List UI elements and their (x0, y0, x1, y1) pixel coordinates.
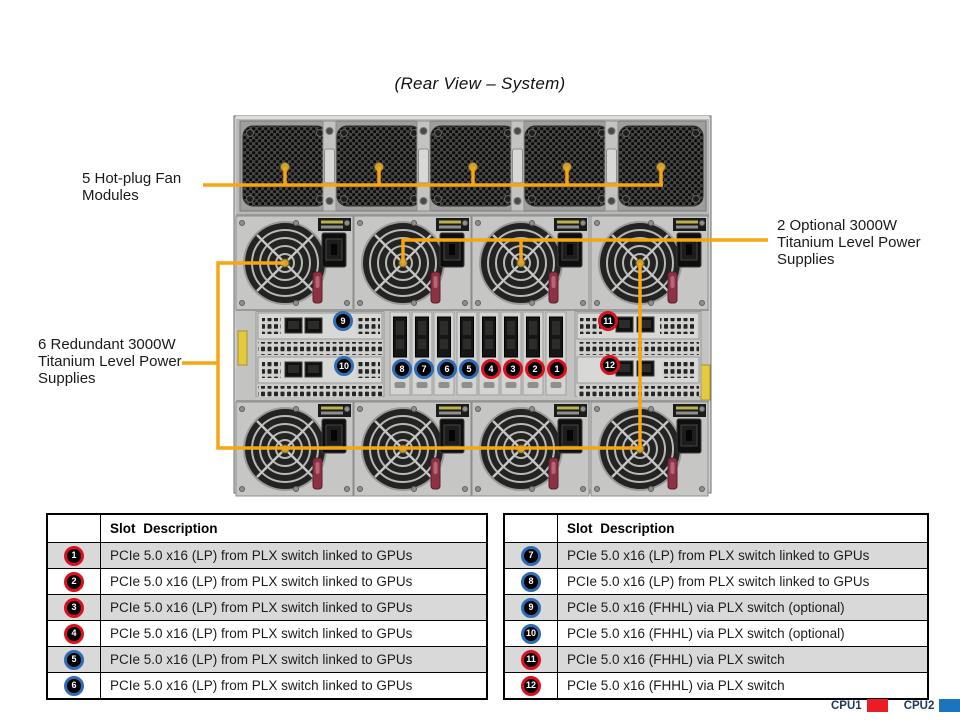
slot-number: 6 (71, 681, 76, 690)
table-row: 5PCIe 5.0 x16 (LP) from PLX switch linke… (48, 646, 486, 672)
slot-badge: 5 (64, 650, 84, 670)
table-row: 12PCIe 5.0 x16 (FHHL) via PLX switch (505, 672, 927, 698)
table-row: 7PCIe 5.0 x16 (LP) from PLX switch linke… (505, 542, 927, 568)
slot-number: 11 (526, 655, 536, 664)
slot-number: 12 (526, 681, 536, 690)
row-badge-cell: 1 (48, 543, 101, 568)
cpu1-label: CPU1 (831, 700, 862, 712)
cpu1-color-swatch (867, 699, 888, 712)
row-badge-cell: 9 (505, 595, 558, 620)
slot-badge: 2 (64, 572, 84, 592)
slot-badge: 1 (64, 546, 84, 566)
table-header-row: Slot Description (505, 515, 927, 542)
redundant-psu-callout-label: 6 Redundant 3000W Titanium Level Power S… (38, 336, 196, 387)
slot-badge: 7 (521, 546, 541, 566)
slot-description: PCIe 5.0 x16 (LP) from PLX switch linked… (101, 647, 486, 672)
fhhl-left-section (256, 312, 384, 398)
server-rear-diagram (0, 105, 960, 515)
row-badge-cell: 12 (505, 673, 558, 698)
page-title: (Rear View – System) (0, 74, 960, 94)
psu-row-top (236, 216, 709, 312)
table-row: 3PCIe 5.0 x16 (LP) from PLX switch linke… (48, 594, 486, 620)
slot-table-right: Slot Description7PCIe 5.0 x16 (LP) from … (503, 513, 929, 700)
table-row: 2PCIe 5.0 x16 (LP) from PLX switch linke… (48, 568, 486, 594)
row-badge-cell: 2 (48, 569, 101, 594)
slot-description: PCIe 5.0 x16 (FHHL) via PLX switch (558, 647, 927, 672)
slot-description: PCIe 5.0 x16 (LP) from PLX switch linked… (101, 543, 486, 568)
row-badge-cell: 4 (48, 621, 101, 646)
slot-description: PCIe 5.0 x16 (LP) from PLX switch linked… (101, 621, 486, 646)
slot-description: PCIe 5.0 x16 (LP) from PLX switch linked… (558, 543, 927, 568)
slot-description: PCIe 5.0 x16 (LP) from PLX switch linked… (558, 569, 927, 594)
slot-number: 3 (71, 603, 76, 612)
slot-description: PCIe 5.0 x16 (LP) from PLX switch linked… (101, 569, 486, 594)
row-badge-cell: 3 (48, 595, 101, 620)
table-row: 6PCIe 5.0 x16 (LP) from PLX switch linke… (48, 672, 486, 698)
table-row: 11PCIe 5.0 x16 (FHHL) via PLX switch (505, 646, 927, 672)
row-badge-cell: 7 (505, 543, 558, 568)
table-row: 1PCIe 5.0 x16 (LP) from PLX switch linke… (48, 542, 486, 568)
page: { "page": { "title": "(Rear View – Syste… (0, 0, 960, 720)
slot-number: 2 (71, 577, 76, 586)
slot-badge: 4 (64, 624, 84, 644)
table-row: 4PCIe 5.0 x16 (LP) from PLX switch linke… (48, 620, 486, 646)
slot-badge: 9 (521, 598, 541, 618)
slot-badge: 3 (64, 598, 84, 618)
slot-badge: 12 (521, 676, 541, 696)
slot-description: PCIe 5.0 x16 (FHHL) via PLX switch (558, 673, 927, 698)
slot-description: PCIe 5.0 x16 (FHHL) via PLX switch (opti… (558, 595, 927, 620)
row-badge-cell: 6 (48, 673, 101, 698)
table-row: 9PCIe 5.0 x16 (FHHL) via PLX switch (opt… (505, 594, 927, 620)
fan-callout-label: 5 Hot-plug Fan Modules (82, 170, 202, 204)
row-badge-cell: 5 (48, 647, 101, 672)
optional-psu-callout-label: 2 Optional 3000W Titanium Level Power Su… (777, 217, 935, 268)
slot-number: 1 (71, 551, 76, 560)
header-badge-cell (48, 515, 101, 542)
slot-number: 7 (528, 551, 533, 560)
row-badge-cell: 10 (505, 621, 558, 646)
slot-description: PCIe 5.0 x16 (FHHL) via PLX switch (opti… (558, 621, 927, 646)
slot-description: PCIe 5.0 x16 (LP) from PLX switch linked… (101, 673, 486, 698)
slot-number: 8 (528, 577, 533, 586)
slot-number: 10 (526, 629, 536, 638)
slot-badge: 8 (521, 572, 541, 592)
table-header-label: Slot Description (558, 515, 927, 542)
slot-table-left: Slot Description1PCIe 5.0 x16 (LP) from … (46, 513, 488, 700)
row-badge-cell: 8 (505, 569, 558, 594)
cpu2-label: CPU2 (904, 700, 935, 712)
slot-number: 5 (71, 655, 76, 664)
table-header-row: Slot Description (48, 515, 486, 542)
row-badge-cell: 11 (505, 647, 558, 672)
slot-badge: 11 (521, 650, 541, 670)
table-row: 10PCIe 5.0 x16 (FHHL) via PLX switch (op… (505, 620, 927, 646)
slot-badge: 6 (64, 676, 84, 696)
table-header-label: Slot Description (101, 515, 486, 542)
cpu2-color-swatch (939, 699, 960, 712)
fhhl-right-section (575, 312, 701, 398)
cpu-legend: CPU1 CPU2 (831, 699, 960, 712)
slot-number: 4 (71, 629, 76, 638)
slot-description: PCIe 5.0 x16 (LP) from PLX switch linked… (101, 595, 486, 620)
table-row: 8PCIe 5.0 x16 (LP) from PLX switch linke… (505, 568, 927, 594)
header-badge-cell (505, 515, 558, 542)
slot-badge: 10 (521, 624, 541, 644)
slot-number: 9 (528, 603, 533, 612)
